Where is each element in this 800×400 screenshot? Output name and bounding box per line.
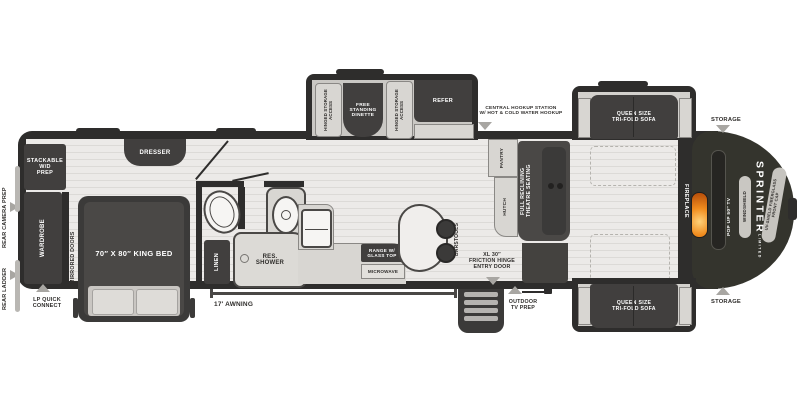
washer-dryer-prep: STACKABLE W/D PREP xyxy=(24,144,66,190)
bathroom-wall xyxy=(196,181,244,187)
step-tread xyxy=(464,292,498,297)
roof-vent xyxy=(76,128,120,134)
wardrobe-label: WARDROBE xyxy=(40,219,47,257)
sofa-bottom: QUEEN SIZE TRI-FOLD SOFA xyxy=(590,284,678,328)
pantry-label: PANTRY xyxy=(500,148,506,168)
sofa-bed-outline xyxy=(590,234,670,282)
arrow-down-icon xyxy=(716,125,730,133)
linen-label: LINEN xyxy=(214,253,220,271)
pantry: PANTRY xyxy=(488,139,518,177)
sofa-bed-outline xyxy=(590,146,676,186)
hinged-storage-right: HINGED STORAGE ACCESS xyxy=(386,81,413,139)
roof-vent xyxy=(216,128,256,134)
barstools-label: BARSTOOLS xyxy=(455,208,463,256)
storage-top-label: STORAGE xyxy=(702,115,750,124)
sofa-top: QUEEN SIZE TRI-FOLD SOFA xyxy=(590,95,678,139)
microwave-label: MICROWAVE xyxy=(361,264,405,279)
hutch: HUTCH xyxy=(494,177,518,237)
awning-label: 17′ AWNING xyxy=(214,301,304,311)
shower-head xyxy=(240,254,249,263)
outdoor-tv-prep-label: OUTDOOR TV PREP xyxy=(498,296,548,313)
arrow-down-icon xyxy=(478,122,492,130)
awning-bar xyxy=(212,292,456,295)
awning-end xyxy=(210,289,213,298)
hitch-pin xyxy=(788,198,797,220)
slideout-vent xyxy=(336,69,384,75)
hinged-storage-left: HINGED STORAGE ACCESS xyxy=(315,83,342,137)
storage-bottom-label: STORAGE xyxy=(702,297,750,306)
hinged-storage-label: HINGED STORAGE ACCESS xyxy=(395,89,405,131)
step-tread xyxy=(464,308,498,313)
pillow xyxy=(92,289,134,315)
pop-up-tv xyxy=(711,150,726,250)
bath-sink xyxy=(272,196,300,234)
floor-plan: FIREPLACE POP UP 50″ TV WINDSHIELD SPRIN… xyxy=(0,0,800,400)
windshield-pill: WINDSHIELD xyxy=(739,176,751,238)
mirrored-doors-wall xyxy=(62,192,69,284)
linen-cabinet: LINEN xyxy=(204,240,230,284)
windshield-label: WINDSHIELD xyxy=(742,191,747,222)
rear-ladder-rail xyxy=(15,166,20,212)
cup-holder xyxy=(548,183,554,189)
brand-block: SPRINTER LIMITED xyxy=(752,160,767,260)
side-table xyxy=(679,287,692,325)
tv-bracket-mount xyxy=(544,288,552,294)
cup-holder xyxy=(557,183,563,189)
fireplace-label: FIREPLACE xyxy=(679,184,689,244)
arrow-up-icon xyxy=(508,286,522,294)
entry-cabinet xyxy=(522,243,568,283)
central-hookup-label: CENTRAL HOOKUP STATION W/ HOT & COLD WAT… xyxy=(462,103,580,119)
awning-end xyxy=(454,289,457,298)
arrow-up-icon xyxy=(716,287,730,295)
step-tread xyxy=(464,300,498,305)
sink-divider xyxy=(305,229,328,230)
lp-quick-connect-label: LP QUICK CONNECT xyxy=(20,294,74,312)
arrow-down-icon xyxy=(486,277,500,285)
slide-handle xyxy=(73,298,78,318)
theatre-seating: FULL RECLINING THEATRE SEATING xyxy=(518,141,570,241)
refer-counter xyxy=(414,124,474,139)
mirrored-doors-label: MIRRORED DOORS xyxy=(70,200,78,284)
fireplace-flame-icon xyxy=(691,192,708,238)
theatre-seat xyxy=(542,147,566,235)
king-bed-label: 70″ X 80″ KING BED xyxy=(84,246,184,260)
toilet-bowl xyxy=(205,193,238,231)
range-label: RANGE W/ GLASS TOP xyxy=(361,244,403,262)
rear-camera-prep-label: REAR CAMERA PREP xyxy=(2,148,11,248)
arrow-up-icon xyxy=(36,284,50,292)
dresser: DRESSER xyxy=(124,139,186,166)
pillow xyxy=(136,289,178,315)
hutch-label: HUTCH xyxy=(503,198,509,216)
entry-door-label: XL 30″ FRICTION HINGE ENTRY DOOR xyxy=(464,246,520,276)
sofa-divider xyxy=(633,286,634,326)
step-tread xyxy=(464,316,498,321)
barstool xyxy=(436,219,456,239)
bathroom-wall xyxy=(196,181,202,285)
kitchen-sink xyxy=(301,209,332,248)
slideout-vent xyxy=(598,81,648,87)
side-table xyxy=(679,98,692,138)
hinged-storage-label: HINGED STORAGE ACCESS xyxy=(324,89,334,131)
slide-handle xyxy=(190,298,195,318)
sofa-divider xyxy=(633,97,634,137)
barstool xyxy=(436,243,456,263)
theatre-seating-label: FULL RECLINING THEATRE SEATING xyxy=(521,147,533,235)
faucet xyxy=(281,210,291,220)
dinette: FREE STANDING DINETTE xyxy=(343,83,383,137)
pop-up-tv-label: POP UP 50″ TV xyxy=(727,166,736,236)
wardrobe: WARDROBE xyxy=(24,192,62,284)
